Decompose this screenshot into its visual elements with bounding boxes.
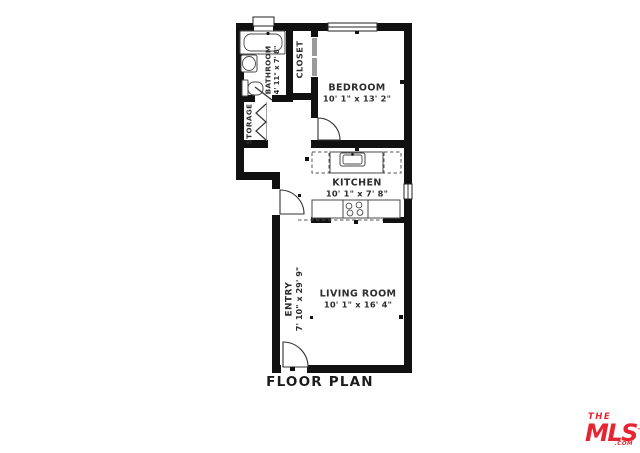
bathroom-dims: 4' 11" x 7' 8" (273, 46, 281, 95)
bedroom-door (318, 118, 340, 140)
entry-door-threshold (290, 367, 295, 371)
wall-closet-right-top-stub (311, 31, 318, 37)
tick (399, 315, 403, 319)
closet-sliding-door-upper (312, 38, 317, 56)
kitchen-sink-faucet (351, 153, 354, 156)
tick (400, 80, 404, 84)
appliance-dashed-right (384, 152, 401, 173)
tick (298, 194, 301, 197)
floor-plan-caption: FLOOR PLAN (266, 374, 374, 390)
stove (343, 200, 368, 218)
tick (310, 316, 313, 319)
storage-label: STORAGE (245, 104, 254, 145)
tick (355, 148, 359, 151)
closet-sliding-door-lower (312, 58, 317, 76)
appliance-dashed-left (312, 152, 329, 173)
kitchen-label: KITCHEN (332, 178, 382, 189)
bathroom-label: BATHROOM (264, 46, 273, 95)
bedroom-dims: 10' 1" x 13' 2" (323, 94, 391, 104)
storage-bifold-door (256, 104, 266, 140)
bathroom-label-group: BATHROOM 4' 11" x 7' 8" (264, 46, 282, 95)
tick (305, 157, 309, 161)
wall-bedroom-bottom (311, 140, 412, 148)
entry-label-group: ENTRY 7' 10" x 29' 9" (285, 267, 305, 331)
bathtub-faucet (266, 32, 269, 35)
wall-closet-right-mid (311, 77, 318, 118)
wall-bathroom-closet-divider (286, 31, 293, 101)
tick (354, 220, 358, 224)
living-room-dims: 10' 1" x 16' 4" (324, 300, 392, 310)
toilet-bowl (248, 82, 263, 95)
living-room-label: LIVING ROOM (320, 289, 397, 300)
kitchen-side-door (280, 190, 304, 214)
toilet-tank (242, 80, 248, 96)
mls-logo: THE MLS™ .COM (585, 413, 635, 451)
kitchen-dims: 10' 1" x 7' 8" (326, 189, 388, 199)
closet-label: CLOSET (295, 41, 305, 79)
entry-label: ENTRY (285, 281, 295, 316)
bathroom-window (253, 17, 274, 26)
bedroom-label: BEDROOM (328, 83, 385, 94)
tick (355, 31, 359, 34)
bathroom-sink-counter (241, 55, 257, 72)
floor-plan-drawing: BEDROOM 10' 1" x 13' 2" KITCHEN 10' 1" x… (0, 0, 640, 453)
floor-plan-canvas: BEDROOM 10' 1" x 13' 2" KITCHEN 10' 1" x… (0, 0, 640, 453)
entry-door (283, 342, 308, 367)
entry-dims: 7' 10" x 29' 9" (294, 267, 304, 331)
